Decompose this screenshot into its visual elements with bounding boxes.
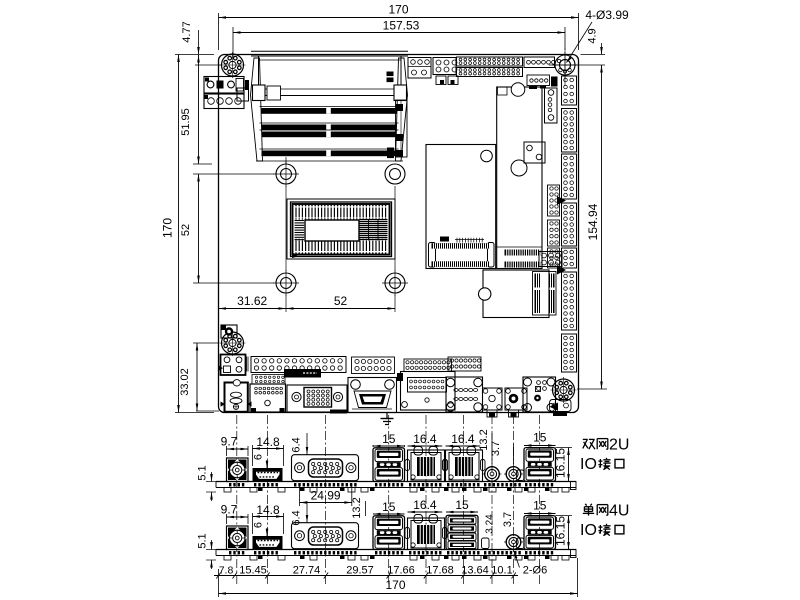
svg-text:15: 15 bbox=[533, 499, 547, 513]
svg-text:15: 15 bbox=[455, 498, 469, 512]
svg-text:170: 170 bbox=[161, 218, 175, 238]
svg-text:6: 6 bbox=[253, 522, 265, 528]
svg-text:9.7: 9.7 bbox=[221, 435, 238, 449]
svg-text:15: 15 bbox=[382, 500, 396, 514]
svg-text:14.8: 14.8 bbox=[256, 503, 280, 517]
svg-text:2-Ø6: 2-Ø6 bbox=[523, 565, 547, 577]
svg-text:29.57: 29.57 bbox=[346, 565, 374, 577]
svg-text:51.95: 51.95 bbox=[180, 108, 192, 136]
svg-text:5.1: 5.1 bbox=[197, 533, 209, 548]
svg-text:154.94: 154.94 bbox=[586, 203, 600, 240]
svg-text:14.8: 14.8 bbox=[256, 435, 280, 449]
svg-text:4U: 4U bbox=[609, 503, 629, 520]
svg-text:7.8: 7.8 bbox=[219, 565, 234, 577]
svg-text:15: 15 bbox=[382, 432, 396, 446]
svg-text:52: 52 bbox=[180, 224, 192, 236]
svg-text:16.4: 16.4 bbox=[413, 432, 437, 446]
svg-text:16.4: 16.4 bbox=[413, 498, 437, 512]
svg-text:10.1: 10.1 bbox=[491, 565, 512, 577]
svg-text:13.64: 13.64 bbox=[461, 565, 489, 577]
svg-text:27.74: 27.74 bbox=[293, 565, 321, 577]
svg-text:6: 6 bbox=[253, 454, 265, 460]
svg-text:24.99: 24.99 bbox=[311, 489, 341, 503]
svg-text:17.66: 17.66 bbox=[387, 565, 415, 577]
svg-text:16.15: 16.15 bbox=[554, 516, 568, 546]
svg-text:157.53: 157.53 bbox=[383, 19, 420, 33]
svg-text:IO: IO bbox=[580, 522, 597, 539]
svg-text:17.68: 17.68 bbox=[426, 565, 454, 577]
svg-text:15: 15 bbox=[533, 431, 547, 445]
svg-text:2U: 2U bbox=[609, 437, 629, 454]
svg-text:170: 170 bbox=[385, 578, 405, 592]
svg-text:16.15: 16.15 bbox=[554, 448, 568, 478]
svg-text:33.02: 33.02 bbox=[179, 368, 191, 396]
svg-text:31.62: 31.62 bbox=[237, 294, 267, 308]
svg-text:3.24: 3.24 bbox=[485, 514, 496, 534]
svg-text:9.7: 9.7 bbox=[221, 503, 238, 517]
svg-text:6.4: 6.4 bbox=[291, 510, 303, 525]
svg-text:15.45: 15.45 bbox=[239, 565, 267, 577]
svg-text:13.2: 13.2 bbox=[351, 497, 363, 518]
svg-text:IO: IO bbox=[580, 456, 597, 473]
svg-text:6.4: 6.4 bbox=[291, 437, 303, 452]
svg-text:170: 170 bbox=[388, 3, 408, 17]
svg-text:5.1: 5.1 bbox=[197, 465, 209, 480]
svg-text:3.7: 3.7 bbox=[502, 512, 514, 527]
svg-text:4-Ø3.99: 4-Ø3.99 bbox=[585, 8, 629, 22]
svg-text:13.2: 13.2 bbox=[478, 429, 490, 450]
svg-text:4.77: 4.77 bbox=[181, 21, 193, 42]
svg-text:52: 52 bbox=[334, 294, 348, 308]
svg-text:4.9: 4.9 bbox=[587, 28, 599, 43]
svg-text:16.4: 16.4 bbox=[451, 432, 475, 446]
